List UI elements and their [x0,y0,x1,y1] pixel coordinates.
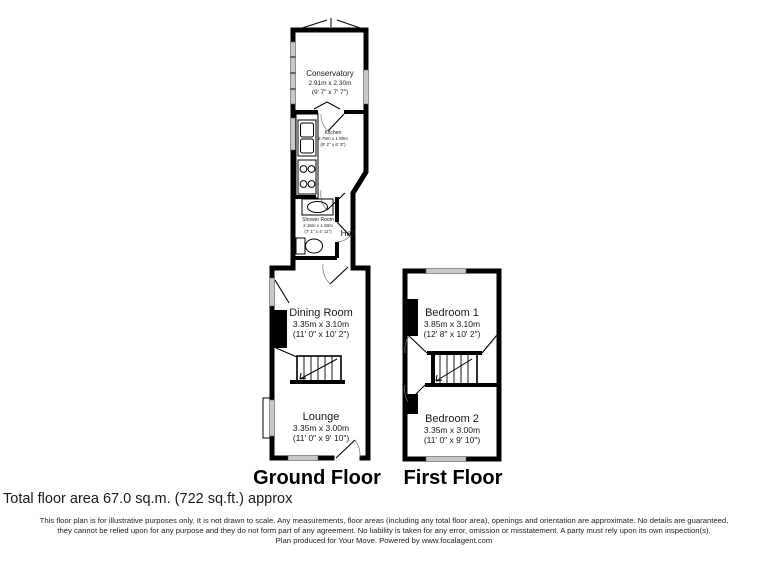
disclaimer-line-2: they cannot be relied upon for any purpo… [0,526,768,536]
floorplan-drawing: Conservatory 2.91m x 2.30m (9' 7" x 7' 7… [0,0,768,490]
shower-room-dims-ft: (7' 1" x 4' 11") [304,229,332,234]
first-floor-title: First Floor [404,467,503,489]
bedroom2-dims-m: 3.35m x 3.00m [424,425,480,435]
hall-label: Hall [341,228,356,238]
dining-room-label: Dining Room [289,307,353,319]
lounge-bay-window-icon [263,398,275,438]
kitchen-window-icon [291,118,296,150]
bedroom1-dims-ft: (12' 8" x 10' 2") [423,329,480,339]
total-floor-area: Total floor area 67.0 sq.m. (722 sq.ft.)… [3,491,292,507]
shower-room-dims-m: 2.16m x 1.50m [303,223,333,228]
disclaimer: This floor plan is for illustrative purp… [0,516,768,546]
dining-room-dims-m: 3.35m x 3.10m [293,319,349,329]
lounge-label: Lounge [303,411,340,423]
dining-chimney-breast [272,310,287,348]
first-floor-plan: Bedroom 1 3.85m x 3.10m (12' 8" x 10' 2"… [404,269,503,490]
lounge-dims-m: 3.35m x 3.00m [293,423,349,433]
ground-floor-plan: Conservatory 2.91m x 2.30m (9' 7" x 7' 7… [253,18,381,489]
kitchen-dims-m: 2.79m x 1.90m [318,136,348,141]
kitchen-dims-ft: (9' 2" x 6' 3") [320,142,346,147]
conservatory-label: Conservatory [306,69,354,78]
disclaimer-line-3: Plan produced for Your Move. Powered by … [0,536,768,546]
bedroom2-dims-ft: (11' 0" x 9' 10") [424,435,481,445]
lounge-dims-ft: (11' 0" x 9' 10") [293,433,350,443]
conservatory-dims-ft: (9' 7" x 7' 7") [312,89,348,96]
lounge-window-icon [288,456,318,461]
bedroom1-chimney-breast [405,299,418,336]
bedroom1-label: Bedroom 1 [425,307,479,319]
disclaimer-line-1: This floor plan is for illustrative purp… [0,516,768,526]
dining-room-dims-ft: (11' 0" x 10' 2") [293,329,350,339]
bedroom2-label: Bedroom 2 [425,413,479,425]
bedroom2-chimney-breast [405,394,418,414]
bedroom1-dims-m: 3.85m x 3.10m [424,319,480,329]
bedroom1-window-icon [426,269,466,274]
floorplan-page: Conservatory 2.91m x 2.30m (9' 7" x 7' 7… [0,0,768,576]
ground-floor-title: Ground Floor [253,467,381,489]
conservatory-dims-m: 2.91m x 2.30m [309,80,352,87]
conservatory-roof-icon [299,18,363,29]
bedroom2-window-icon [426,457,466,462]
